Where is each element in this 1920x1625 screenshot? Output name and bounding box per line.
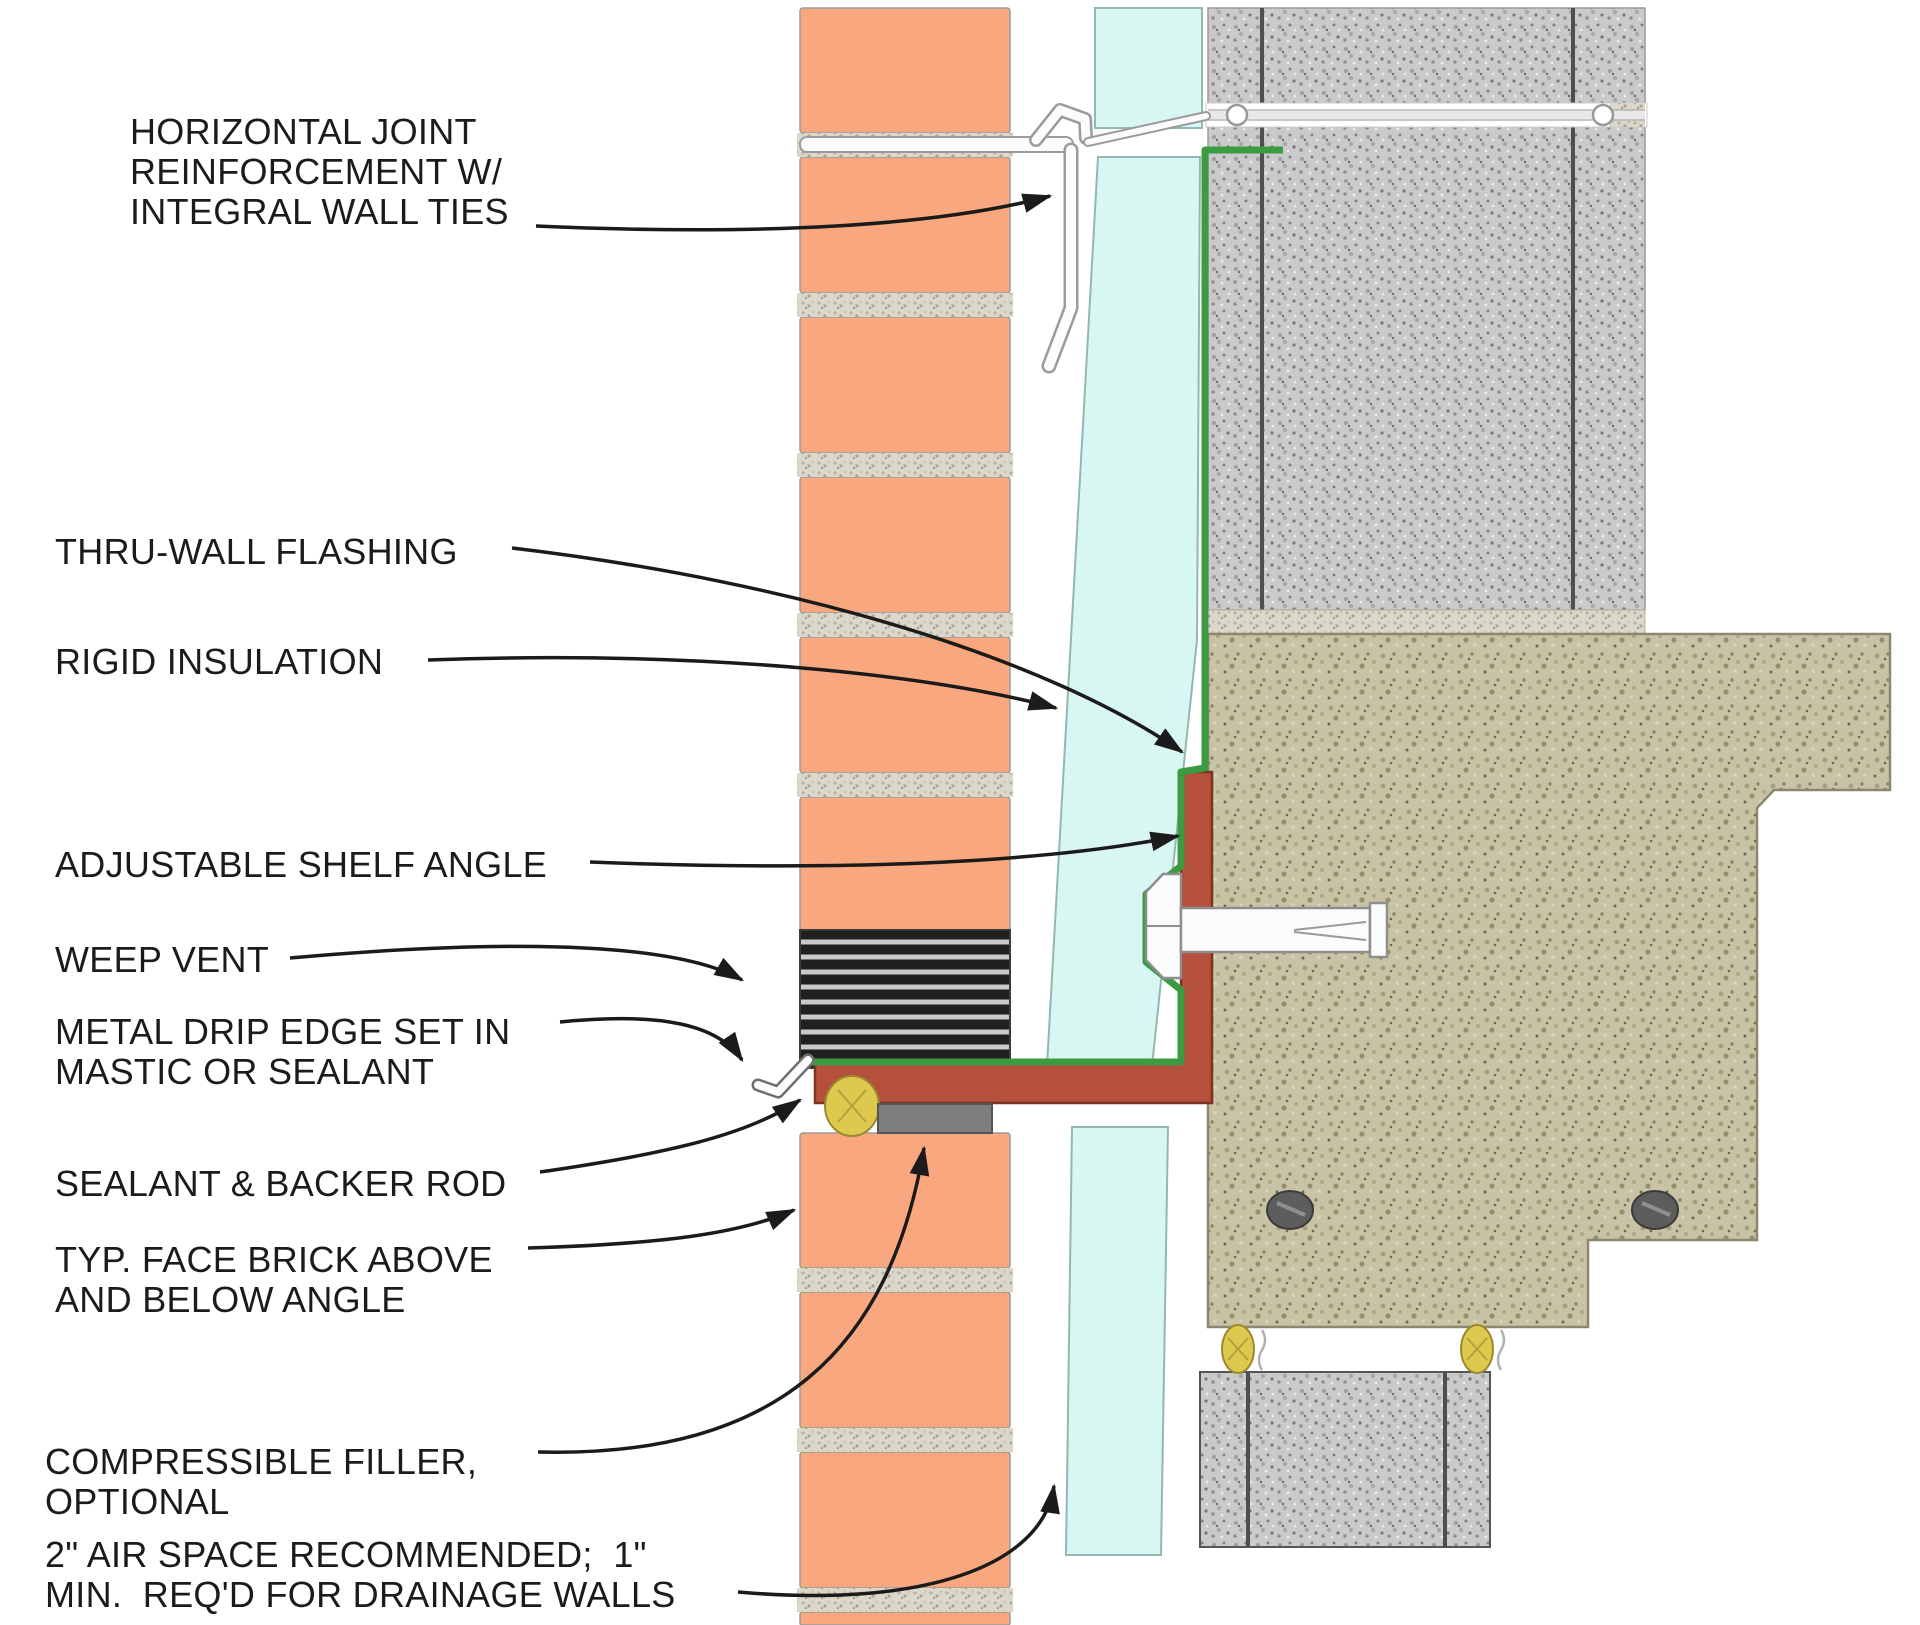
label-line: THRU-WALL FLASHING [55, 532, 458, 572]
label-line: AND BELOW ANGLE [55, 1280, 493, 1320]
face-brick-veneer [800, 8, 1010, 1625]
label-line: INTEGRAL WALL TIES [130, 192, 509, 232]
label-line: 2" AIR SPACE RECOMMENDED; 1" [45, 1535, 676, 1575]
label-line: MIN. REQ'D FOR DRAINAGE WALLS [45, 1575, 676, 1615]
label-line: METAL DRIP EDGE SET IN [55, 1012, 510, 1052]
label-line: HORIZONTAL JOINT [130, 112, 509, 152]
label-line: SEALANT & BACKER ROD [55, 1164, 506, 1204]
brick-course [800, 1612, 1010, 1625]
slab-soffit-joint-filler [1222, 1325, 1504, 1373]
rigid-insulation-lower [1066, 1127, 1168, 1555]
cmu-backup-wall-upper [1206, 8, 1647, 634]
label-typ-face-brick: TYP. FACE BRICK ABOVE AND BELOW ANGLE [55, 1240, 493, 1320]
label-line: ADJUSTABLE SHELF ANGLE [55, 845, 547, 885]
brick-course [800, 8, 1010, 133]
slab-anchor [1632, 1191, 1678, 1229]
label-rigid-insulation: RIGID INSULATION [55, 642, 383, 682]
label-line: REINFORCEMENT W/ [130, 152, 509, 192]
mortar-joint [797, 613, 1013, 637]
brick-course [800, 1133, 1010, 1268]
metal-drip-edge [758, 1060, 808, 1092]
wall-section-drawing [0, 0, 1920, 1625]
leader-sealant-backer-rod [540, 1100, 800, 1172]
label-sealant-backer-rod: SEALANT & BACKER ROD [55, 1164, 506, 1204]
label-line: RIGID INSULATION [55, 642, 383, 682]
label-line: OPTIONAL [45, 1482, 477, 1522]
bolt-end-cap [1370, 903, 1387, 957]
mortar-joint [797, 453, 1013, 477]
cmu-backup-wall-lower [1200, 1372, 1490, 1547]
leader-weep-vent [290, 946, 742, 980]
wire-cross-section [1227, 105, 1247, 125]
leader-metal-drip-edge [560, 1019, 742, 1060]
slab-anchor [1267, 1191, 1313, 1229]
label-air-space-note: 2" AIR SPACE RECOMMENDED; 1" MIN. REQ'D … [45, 1535, 676, 1615]
label-line: TYP. FACE BRICK ABOVE [55, 1240, 493, 1280]
brick-course [800, 637, 1010, 773]
mortar-joint [797, 773, 1013, 797]
label-compressible-filler: COMPRESSIBLE FILLER, OPTIONAL [45, 1442, 477, 1522]
mortar-joint [797, 1428, 1013, 1452]
cmu-bottom-mortar-bed [1208, 610, 1645, 634]
label-line: WEEP VENT [55, 940, 269, 980]
brick-course [800, 1292, 1010, 1428]
label-thru-wall-flashing: THRU-WALL FLASHING [55, 532, 458, 572]
concrete-slab [1208, 634, 1890, 1327]
mortar-joint [797, 1268, 1013, 1292]
compressible-filler-bar [878, 1104, 992, 1133]
label-line: MASTIC OR SEALANT [55, 1052, 510, 1092]
rigid-insulation-top [1095, 8, 1202, 128]
brick-course [800, 477, 1010, 613]
label-weep-vent: WEEP VENT [55, 940, 269, 980]
leader-lines [290, 196, 1182, 1595]
weep-vent [800, 930, 1010, 1068]
leader-typ-face-brick [528, 1210, 794, 1248]
mortar-joint [797, 293, 1013, 317]
wire-cross-section [1593, 105, 1613, 125]
label-metal-drip-edge: METAL DRIP EDGE SET IN MASTIC OR SEALANT [55, 1012, 510, 1092]
bolt-shaft [1181, 908, 1370, 952]
brick-course [800, 317, 1010, 453]
mortar-joint [797, 1588, 1013, 1612]
label-line: COMPRESSIBLE FILLER, [45, 1442, 477, 1482]
detail-drawing-canvas: HORIZONTAL JOINT REINFORCEMENT W/ INTEGR… [0, 0, 1920, 1625]
label-adjustable-shelf-angle: ADJUSTABLE SHELF ANGLE [55, 845, 547, 885]
label-horizontal-joint-reinforcement: HORIZONTAL JOINT REINFORCEMENT W/ INTEGR… [130, 112, 509, 232]
